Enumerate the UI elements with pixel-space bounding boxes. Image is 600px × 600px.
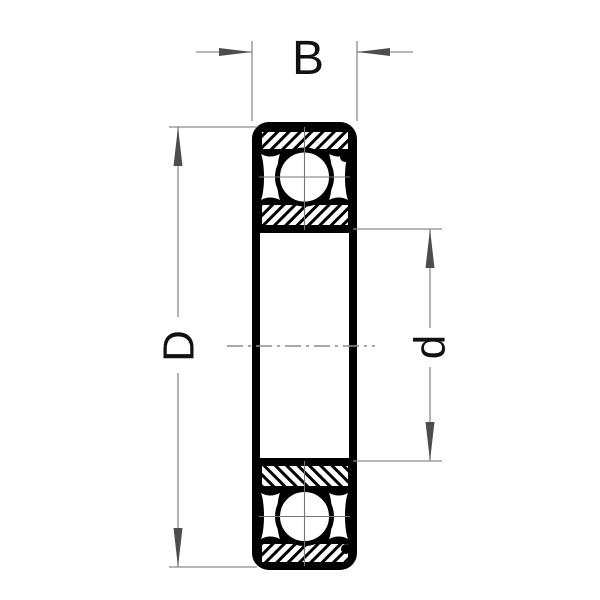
d-outer-arrow-up-icon bbox=[174, 127, 183, 166]
dimension-label-outer-diameter: D bbox=[155, 330, 204, 362]
seal-anchor-dot-bottom bbox=[341, 544, 351, 554]
dimension-label-bore-diameter: d bbox=[406, 335, 455, 359]
bearing-section-top bbox=[252, 127, 357, 233]
dimension-B: B bbox=[196, 32, 413, 121]
b-arrow-left-icon bbox=[219, 48, 252, 56]
b-arrow-right-icon bbox=[357, 48, 390, 56]
d-bore-arrow-up-icon bbox=[426, 229, 435, 268]
bearing-diagram: B D d bbox=[0, 0, 600, 600]
seal-anchor-dot-top bbox=[340, 152, 350, 162]
dimension-label-width: B bbox=[292, 32, 324, 85]
dimension-D: D bbox=[155, 127, 258, 567]
bearing-body bbox=[227, 126, 375, 566]
bearing-drawing-canvas: B D d bbox=[0, 0, 600, 600]
d-bore-arrow-down-icon bbox=[426, 422, 435, 461]
dimension-d: d bbox=[353, 229, 455, 461]
d-outer-arrow-down-icon bbox=[174, 528, 183, 567]
bearing-section-bottom bbox=[252, 458, 357, 566]
